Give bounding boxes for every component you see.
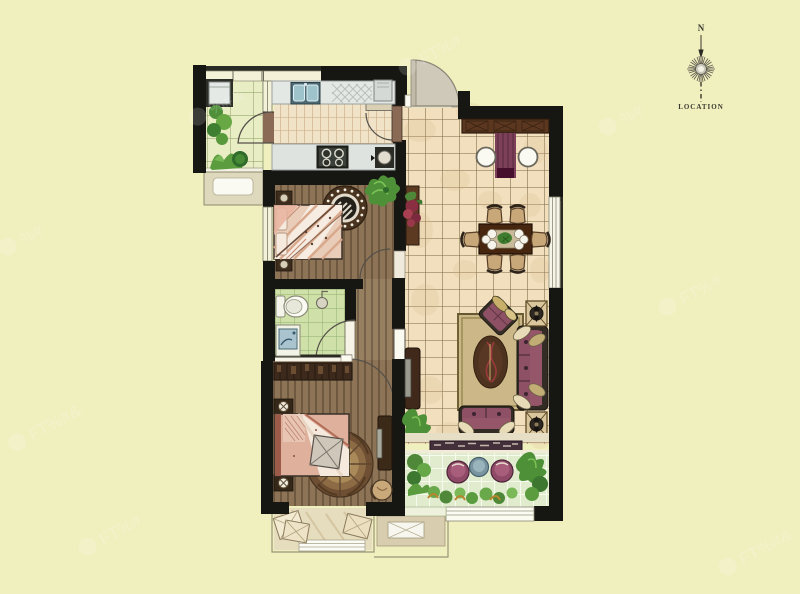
svg-text:N: N: [698, 23, 705, 33]
svg-text:LOCATION: LOCATION: [678, 103, 724, 111]
